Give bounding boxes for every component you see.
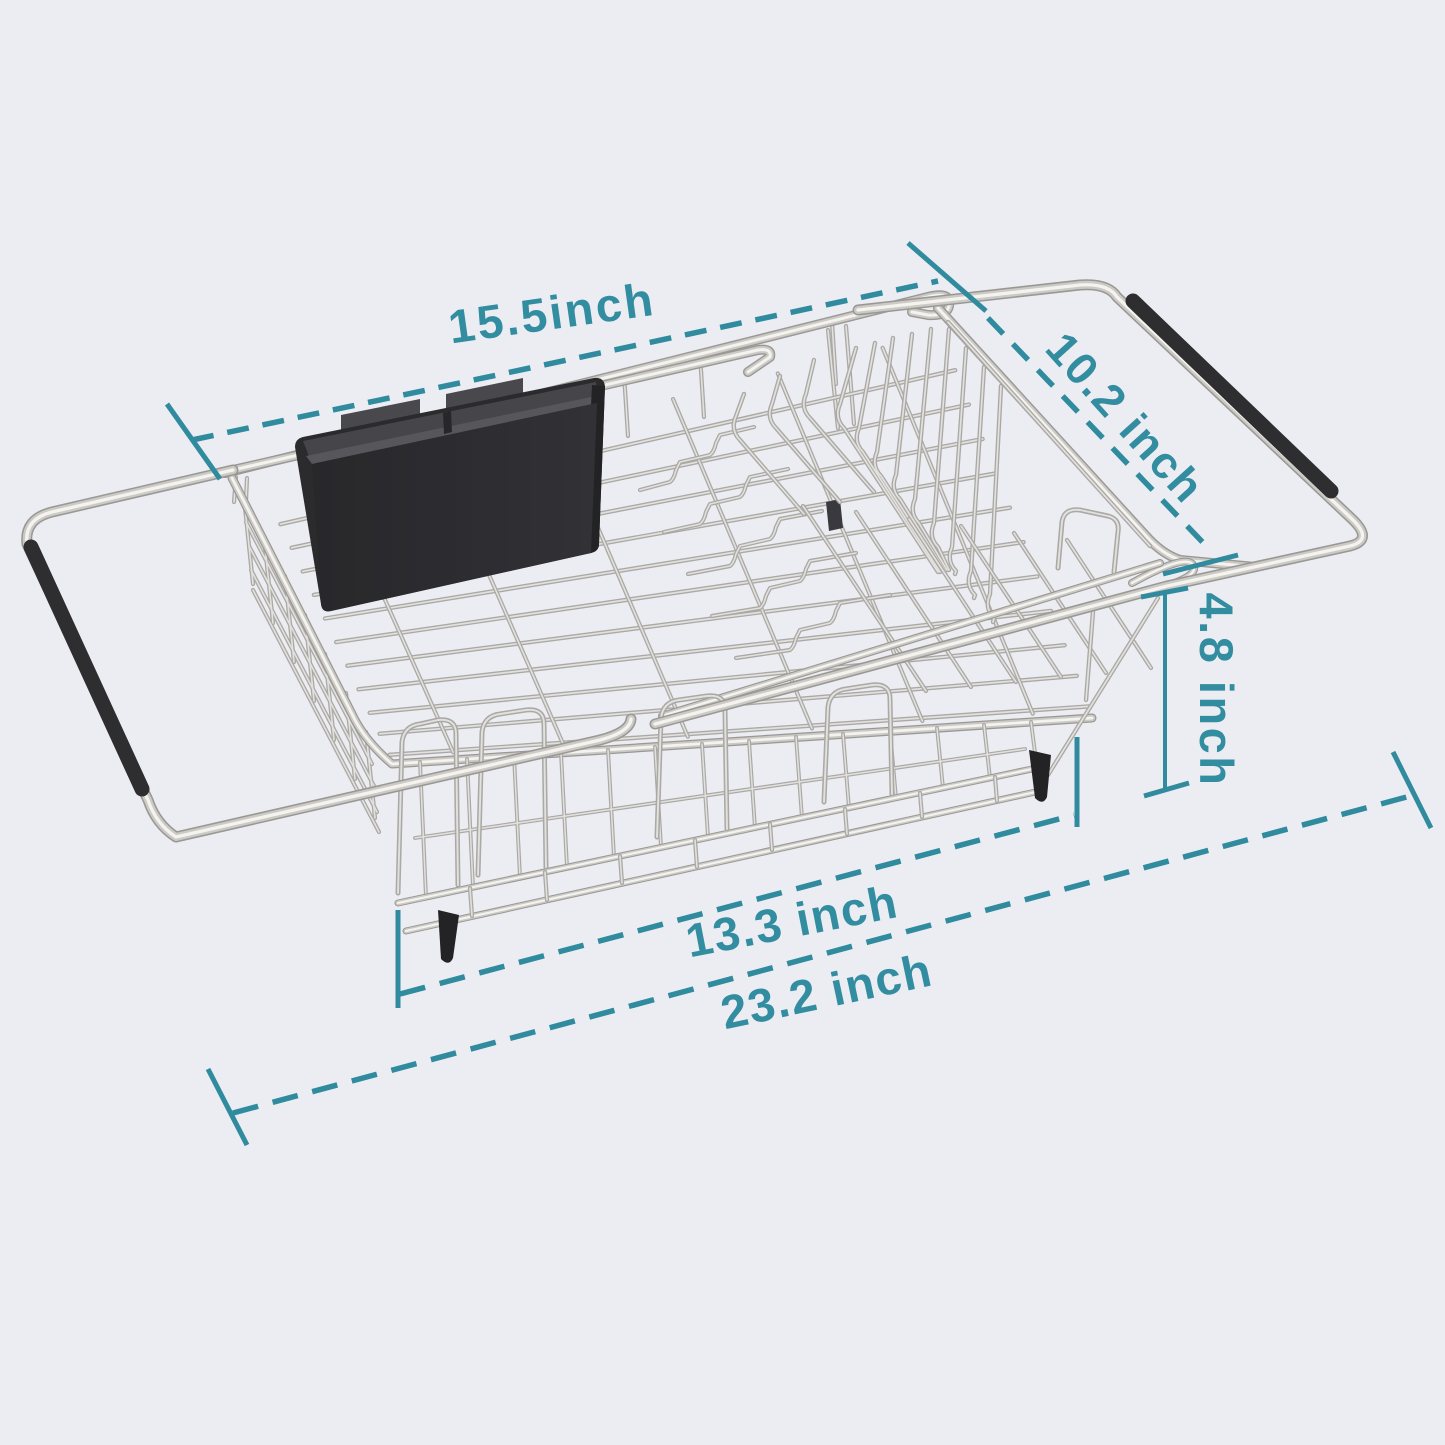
svg-text:4.8 inch: 4.8 inch [1190, 592, 1243, 787]
